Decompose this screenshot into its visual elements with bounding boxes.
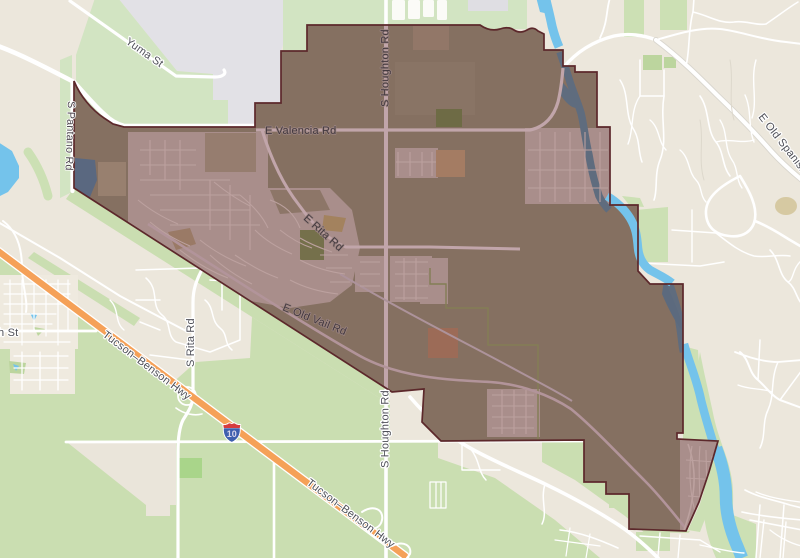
svg-text:h St: h St — [0, 327, 18, 339]
svg-text:S Houghton Rd: S Houghton Rd — [380, 390, 392, 468]
svg-text:S Rita Rd: S Rita Rd — [185, 318, 197, 367]
svg-text:10: 10 — [227, 429, 237, 439]
svg-text:S Pantano Rd: S Pantano Rd — [63, 101, 77, 171]
svg-text:E Valencia Rd: E Valencia Rd — [265, 125, 337, 137]
svg-text:S Houghton Rd: S Houghton Rd — [380, 29, 392, 107]
